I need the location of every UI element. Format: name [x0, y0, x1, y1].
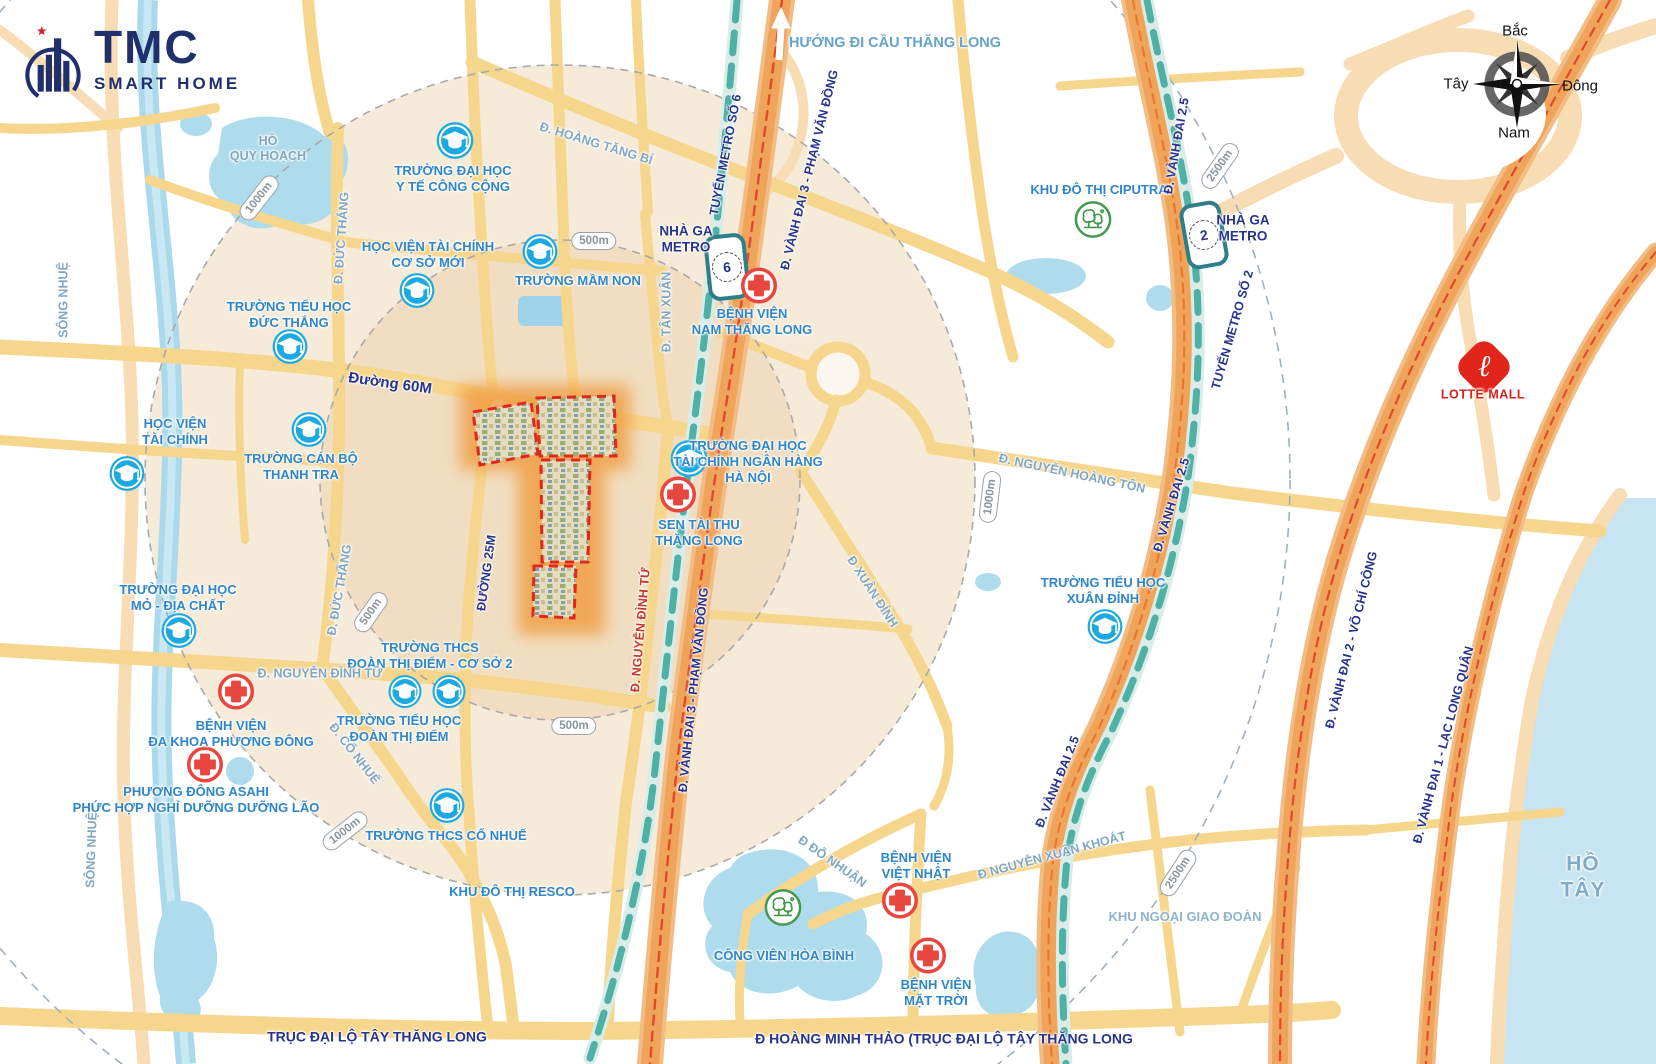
- distance-badge-500m: 500m: [551, 717, 596, 735]
- compass-west: Tây: [1443, 76, 1468, 93]
- area-label-hoa-binh: CÔNG VIÊN HÒA BÌNH: [714, 948, 854, 964]
- hospital-icon: [881, 882, 919, 925]
- hospital-icon: [909, 937, 947, 980]
- poi-label-phuong-dong-asahi: PHƯƠNG ĐÔNG ASAHI PHỨC HỢP NGHỈ DƯỠNG DƯ…: [73, 784, 320, 816]
- poi-label-can-bo-thanh-tra: TRƯỜNG CÁN BỘ THANH TRA: [244, 451, 358, 483]
- poi-label-mo-dia-chat: TRƯỜNG ĐẠI HỌC MỎ - ĐỊA CHẤT: [119, 582, 236, 614]
- compass-south: Nam: [1498, 125, 1530, 142]
- school-icon: [160, 612, 198, 655]
- school-icon: [428, 787, 466, 830]
- location-map: TMC SMART HOME Bắc Tây Đông Nam 6 2 ℓ TR…: [0, 0, 1656, 1064]
- logo-star: [37, 26, 47, 35]
- site-block-b: [537, 396, 616, 456]
- poi-label-dh-tai-chinh-ngan-hang: TRƯỜNG ĐẠI HỌC TÀI CHÍNH NGÂN HÀNG HÀ NỘ…: [673, 438, 823, 486]
- hospital-icon: [740, 267, 778, 310]
- poi-label-tieu-hoc-xuan-dinh: TRƯỜNG TIỂU HỌC XUÂN ĐỈNH: [1041, 575, 1165, 607]
- school-icon: [271, 328, 309, 371]
- poi-label-hv-tai-chinh-co-so-moi: HỌC VIỆN TÀI CHÍNH CƠ SỞ MỚI: [362, 239, 494, 271]
- area-label-ciputra: KHU ĐÔ THỊ CIPUTRA: [1030, 182, 1167, 198]
- tmc-logo: TMC SMART HOME: [22, 24, 240, 108]
- area-label-resco: KHU ĐÔ THỊ RESCO: [449, 884, 575, 900]
- poi-label-bv-nam-thang-long: BỆNH VIỆN NAM THĂNG LONG: [692, 306, 813, 338]
- road-label-huong-di: HƯỚNG ĐI CẦU THĂNG LONG: [789, 35, 1001, 53]
- site-block-c: [541, 460, 590, 562]
- metro-station-6-number: 6: [722, 259, 731, 276]
- school-icon: [521, 233, 559, 276]
- poi-label-sen-tai-thu: SEN TÀI THU THĂNG LONG: [655, 517, 742, 549]
- tmc-logo-icon: [22, 24, 84, 108]
- hospital-icon: [186, 746, 224, 789]
- water-label-song-nhue-bottom: SÔNG NHUỆ: [83, 812, 101, 888]
- metro-station-2-label: NHÀ GA METRO: [1216, 213, 1269, 246]
- poi-label-thcs-co-nhue: TRƯỜNG THCS CỔ NHUẾ: [365, 828, 526, 844]
- school-icon: [387, 674, 423, 715]
- poi-label-tieu-hoc-duc-thang: TRƯỜNG TIỂU HỌC ĐỨC THẮNG: [227, 299, 351, 331]
- school-icon: [435, 121, 475, 166]
- road-label-nguyen-dinh-tu: Đ. NGUYỄN ĐÌNH TỨ: [258, 666, 383, 681]
- logo-tagline: SMART HOME: [94, 74, 240, 94]
- park-icon: [763, 888, 803, 933]
- water-label-ho-tay: HỒ TÂY: [1547, 851, 1620, 902]
- site-block-d: [533, 566, 576, 618]
- school-icon: [108, 455, 146, 498]
- poi-label-hoc-vien-tai-chinh: HỌC VIỆN TÀI CHÍNH: [142, 416, 208, 448]
- road-label-truc-dai-lo: TRỤC ĐẠI LỘ TÂY THĂNG LONG: [267, 1028, 487, 1045]
- poi-label-mam-non: TRƯỜNG MẦM NON: [515, 273, 641, 289]
- school-icon: [1086, 608, 1124, 651]
- water-label-ho-quy-hoach: HỒ QUY HOẠCH: [230, 134, 306, 165]
- hospital-icon: [217, 673, 255, 716]
- distance-badge-500m: 500m: [571, 232, 616, 250]
- water-label-song-nhue-top: SÔNG NHUỆ: [56, 262, 71, 338]
- compass-north: Bắc: [1502, 23, 1528, 40]
- logo-brand: TMC: [94, 24, 240, 70]
- site-block-a: [473, 402, 538, 465]
- area-label-ngoai-giao-doan: KHU NGOẠI GIAO ĐOÀN: [1108, 909, 1261, 925]
- compass-east: Đông: [1562, 78, 1598, 95]
- road-label-tan-xuan: Đ. TÂN XUÂN: [659, 272, 674, 353]
- road-label-hoang-minh-thao: Đ HOÀNG MINH THẢO (TRỤC ĐẠI LỘ TÂY THĂNG…: [755, 1030, 1133, 1047]
- metro-station-2-number: 2: [1199, 226, 1209, 243]
- school-icon: [290, 411, 328, 454]
- poi-label-bv-viet-nhat: BỆNH VIỆN VIỆT NHẬT: [881, 850, 952, 882]
- poi-label-bv-mat-troi: BỆNH VIỆN MẶT TRỜI: [901, 977, 972, 1009]
- poi-label-y-te-cong-cong: TRƯỜNG ĐẠI HỌC Y TẾ CÔNG CỘNG: [394, 163, 511, 195]
- poi-label-bv-da-khoa-phuong-dong: BỆNH VIỆN ĐA KHOA PHƯƠNG ĐÔNG: [148, 718, 313, 750]
- school-icon: [431, 674, 467, 715]
- metro-station-6-label: NHÀ GA METRO: [659, 224, 712, 257]
- school-icon: [398, 272, 436, 315]
- poi-label-tieu-hoc-doan-thi-diem: TRƯỜNG TIỂU HỌC ĐOÀN THỊ ĐIỂM: [337, 713, 461, 745]
- poi-label-lotte-mall: LOTTE MALL: [1441, 387, 1525, 402]
- park-icon: [1073, 200, 1113, 245]
